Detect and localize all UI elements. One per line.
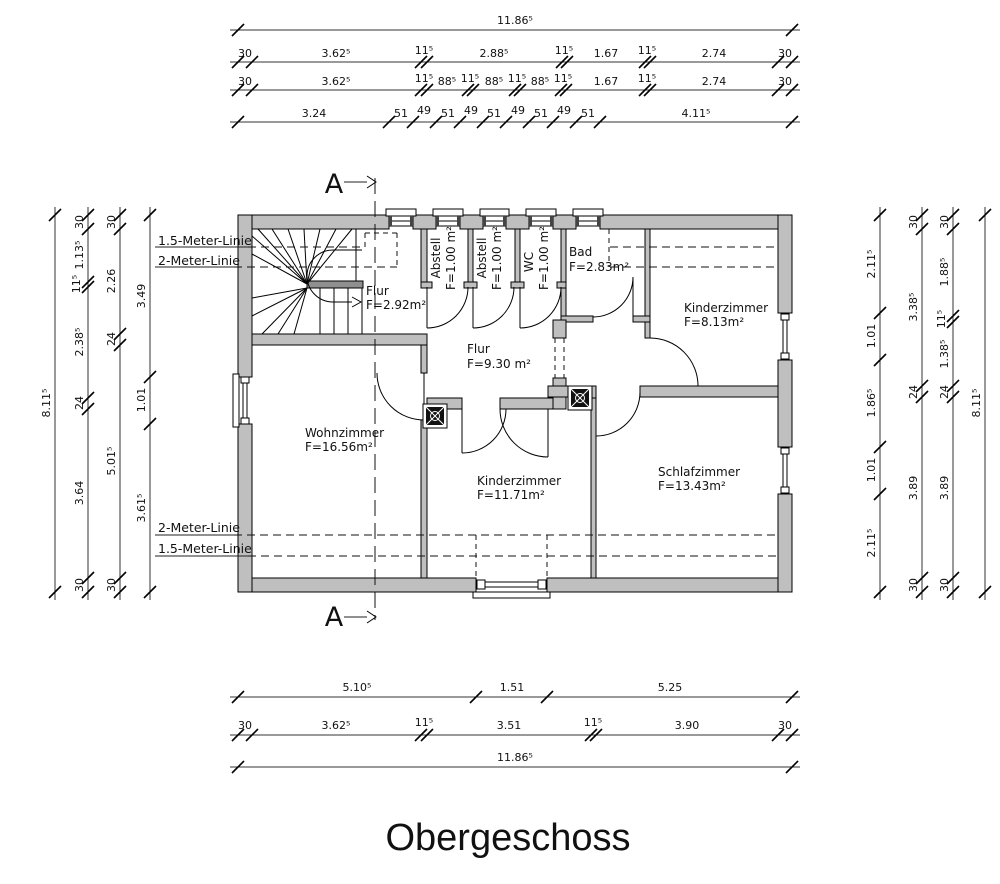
svg-text:11⁵: 11⁵ xyxy=(70,275,83,293)
svg-text:30: 30 xyxy=(238,75,252,88)
svg-text:11⁵: 11⁵ xyxy=(584,716,602,729)
svg-text:1.13⁵: 1.13⁵ xyxy=(73,241,86,270)
svg-text:Bad: Bad xyxy=(569,245,592,259)
window-top-2 xyxy=(433,209,463,226)
dim-right-total: 8.11⁵ xyxy=(970,389,983,418)
svg-text:1.01: 1.01 xyxy=(135,388,148,413)
chimney-2 xyxy=(568,386,592,410)
svg-text:11⁵: 11⁵ xyxy=(415,716,433,729)
dim-left-total: 8.11⁵ xyxy=(40,389,53,418)
svg-text:F=8.13m²: F=8.13m² xyxy=(684,315,744,329)
svg-text:30: 30 xyxy=(238,719,252,732)
svg-text:49: 49 xyxy=(417,104,431,117)
svg-text:Kinderzimmer: Kinderzimmer xyxy=(477,474,561,488)
svg-text:1.88⁵: 1.88⁵ xyxy=(938,258,951,287)
svg-text:1.01: 1.01 xyxy=(865,324,878,349)
room-label-abstell1: Abstell F=1.00 m² xyxy=(429,226,458,290)
svg-text:11⁵: 11⁵ xyxy=(554,72,572,85)
room-label-stair-flur: Flur F=2.92m² xyxy=(366,284,426,312)
room-label-kinderzimmer-top: Kinderzimmer F=8.13m² xyxy=(684,301,768,329)
svg-text:3.61⁵: 3.61⁵ xyxy=(135,494,148,523)
svg-text:2.11⁵: 2.11⁵ xyxy=(865,529,878,558)
dim-bottom-total: 11.86⁵ xyxy=(497,751,533,764)
svg-text:88⁵: 88⁵ xyxy=(531,75,549,88)
svg-text:F=9.30 m²: F=9.30 m² xyxy=(467,357,531,371)
window-bottom xyxy=(473,580,550,598)
svg-text:3.38⁵: 3.38⁵ xyxy=(907,293,920,322)
svg-text:Abstell: Abstell xyxy=(429,238,443,279)
stair-direction-arrow xyxy=(352,297,361,307)
svg-text:3.51: 3.51 xyxy=(497,719,522,732)
room-label-flur: Flur F=9.30 m² xyxy=(467,342,531,371)
svg-text:5.01⁵: 5.01⁵ xyxy=(105,447,118,476)
svg-text:3.64: 3.64 xyxy=(73,481,86,506)
door-abstell2 xyxy=(473,287,514,328)
svg-text:30: 30 xyxy=(73,578,86,592)
svg-text:30: 30 xyxy=(907,215,920,229)
window-top-1 xyxy=(386,209,416,226)
svg-text:2.11⁵: 2.11⁵ xyxy=(865,250,878,279)
svg-text:1.01: 1.01 xyxy=(865,458,878,483)
window-top-5 xyxy=(573,209,603,226)
svg-text:11⁵: 11⁵ xyxy=(415,72,433,85)
svg-text:49: 49 xyxy=(557,104,571,117)
svg-text:1.67: 1.67 xyxy=(594,47,619,60)
svg-text:Flur: Flur xyxy=(366,284,389,298)
svg-text:11⁵: 11⁵ xyxy=(638,72,656,85)
room-labels: Flur F=2.92m² Abstell F=1.00 m² Abstell … xyxy=(305,226,768,502)
room-label-wohnzimmer: Wohnzimmer F=16.56m² xyxy=(305,426,384,454)
svg-text:30: 30 xyxy=(938,215,951,229)
chimney-1 xyxy=(423,404,447,428)
staircase xyxy=(252,229,363,334)
room-label-wc: WC F=1.00 m² xyxy=(522,226,551,290)
svg-text:F=1.00 m²: F=1.00 m² xyxy=(490,226,504,290)
svg-text:1.38⁵: 1.38⁵ xyxy=(938,340,951,369)
svg-text:Schlafzimmer: Schlafzimmer xyxy=(658,465,740,479)
svg-text:F=2.83m²: F=2.83m² xyxy=(569,260,629,274)
svg-text:24: 24 xyxy=(907,385,920,399)
svg-text:11⁵: 11⁵ xyxy=(555,44,573,57)
svg-text:11⁵: 11⁵ xyxy=(935,310,948,328)
door-kinderzimmer-bottom-a xyxy=(462,409,506,453)
svg-text:11⁵: 11⁵ xyxy=(638,44,656,57)
label-2-meter-linie-bottom: 2-Meter-Linie xyxy=(158,520,240,535)
svg-text:49: 49 xyxy=(464,104,478,117)
floor-plan-drawing: 11.86⁵ 30 3.62⁵ 11⁵ 2.88⁵ 11⁵ 1.67 11⁵ 2… xyxy=(0,0,1000,884)
svg-text:30: 30 xyxy=(778,719,792,732)
svg-text:51: 51 xyxy=(581,107,595,120)
section-letter-top: A xyxy=(325,169,344,200)
svg-text:30: 30 xyxy=(238,47,252,60)
svg-text:24: 24 xyxy=(938,385,951,399)
svg-text:F=2.92m²: F=2.92m² xyxy=(366,298,426,312)
svg-text:30: 30 xyxy=(778,47,792,60)
svg-text:2.74: 2.74 xyxy=(702,75,727,88)
door-schlafzimmer xyxy=(596,392,640,436)
svg-text:F=16.56m²: F=16.56m² xyxy=(305,440,373,454)
svg-text:2.88⁵: 2.88⁵ xyxy=(480,47,509,60)
svg-text:30: 30 xyxy=(907,578,920,592)
label-15-meter-linie-top: 1.5-Meter-Linie xyxy=(158,233,252,248)
room-label-kinderzimmer-bottom: Kinderzimmer F=11.71m² xyxy=(477,474,561,502)
svg-text:51: 51 xyxy=(487,107,501,120)
svg-text:51: 51 xyxy=(441,107,455,120)
svg-text:51: 51 xyxy=(534,107,548,120)
dim-top-total: 11.86⁵ xyxy=(497,14,533,27)
window-top-3 xyxy=(480,209,509,226)
window-right-2 xyxy=(781,448,789,493)
window-left xyxy=(233,374,249,427)
svg-text:5.10⁵: 5.10⁵ xyxy=(343,681,372,694)
svg-text:4.11⁵: 4.11⁵ xyxy=(682,107,711,120)
room-label-bad: Bad F=2.83m² xyxy=(569,245,629,274)
window-right-1 xyxy=(781,314,789,359)
label-15-meter-linie-bottom: 1.5-Meter-Linie xyxy=(158,541,252,556)
svg-text:30: 30 xyxy=(938,578,951,592)
door-kinderzimmer-top xyxy=(650,338,698,386)
svg-text:30: 30 xyxy=(105,578,118,592)
svg-text:30: 30 xyxy=(778,75,792,88)
svg-text:2.26: 2.26 xyxy=(105,269,118,294)
room-label-schlafzimmer: Schlafzimmer F=13.43m² xyxy=(658,465,740,493)
door-abstell1 xyxy=(427,287,468,328)
svg-text:11⁵: 11⁵ xyxy=(415,44,433,57)
door-bad xyxy=(593,277,633,317)
svg-text:3.62⁵: 3.62⁵ xyxy=(322,719,351,732)
svg-text:24: 24 xyxy=(105,332,118,346)
svg-text:F=11.71m²: F=11.71m² xyxy=(477,488,545,502)
svg-text:30: 30 xyxy=(73,215,86,229)
svg-text:3.49: 3.49 xyxy=(135,284,148,309)
svg-text:51: 51 xyxy=(394,107,408,120)
svg-text:3.90: 3.90 xyxy=(675,719,700,732)
label-2-meter-linie-top: 2-Meter-Linie xyxy=(158,253,240,268)
svg-text:Wohnzimmer: Wohnzimmer xyxy=(305,426,384,440)
room-label-abstell2: Abstell F=1.00 m² xyxy=(475,226,504,290)
svg-text:3.62⁵: 3.62⁵ xyxy=(322,47,351,60)
page-title: Obergeschoss xyxy=(385,817,630,859)
window-top-4 xyxy=(526,209,556,226)
svg-text:88⁵: 88⁵ xyxy=(438,75,456,88)
svg-text:30: 30 xyxy=(105,215,118,229)
svg-text:3.89: 3.89 xyxy=(938,476,951,501)
svg-text:5.25: 5.25 xyxy=(658,681,683,694)
svg-text:F=13.43m²: F=13.43m² xyxy=(658,479,726,493)
svg-text:11⁵: 11⁵ xyxy=(461,72,479,85)
svg-text:11⁵: 11⁵ xyxy=(508,72,526,85)
svg-text:2.38⁵: 2.38⁵ xyxy=(73,328,86,357)
svg-text:24: 24 xyxy=(73,396,86,410)
svg-text:3.89: 3.89 xyxy=(907,476,920,501)
svg-text:Kinderzimmer: Kinderzimmer xyxy=(684,301,768,315)
svg-text:3.62⁵: 3.62⁵ xyxy=(322,75,351,88)
svg-text:F=1.00 m²: F=1.00 m² xyxy=(444,226,458,290)
svg-text:3.24: 3.24 xyxy=(302,107,327,120)
svg-text:F=1.00 m²: F=1.00 m² xyxy=(537,226,551,290)
door-wohnzimmer xyxy=(377,373,424,420)
svg-text:WC: WC xyxy=(522,252,536,272)
svg-text:1.86⁵: 1.86⁵ xyxy=(865,389,878,418)
svg-text:Flur: Flur xyxy=(467,342,490,356)
svg-text:49: 49 xyxy=(511,104,525,117)
section-letter-bottom: A xyxy=(325,602,344,633)
dimension-labels: 11.86⁵ 30 3.62⁵ 11⁵ 2.88⁵ 11⁵ 1.67 11⁵ 2… xyxy=(40,14,983,764)
svg-text:2.74: 2.74 xyxy=(702,47,727,60)
door-kinderzimmer-bottom-b xyxy=(500,409,548,457)
svg-text:Abstell: Abstell xyxy=(475,238,489,279)
svg-text:1.51: 1.51 xyxy=(500,681,525,694)
svg-text:1.67: 1.67 xyxy=(594,75,619,88)
svg-text:88⁵: 88⁵ xyxy=(485,75,503,88)
